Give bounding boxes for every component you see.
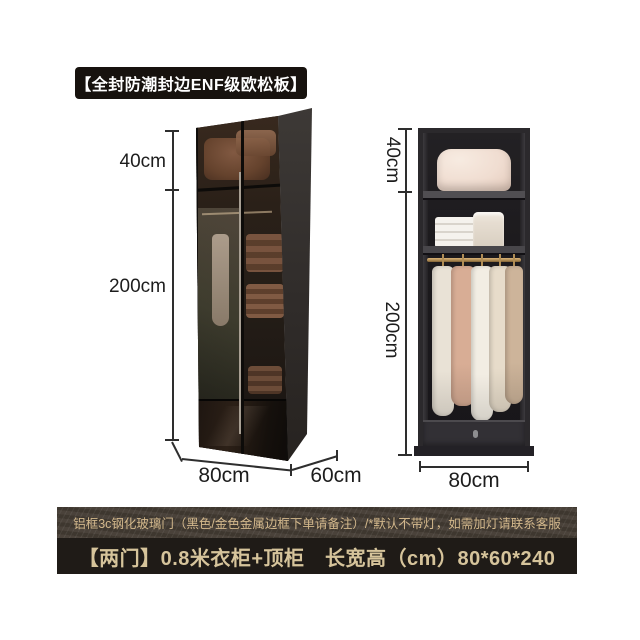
hanging-clothes (212, 234, 229, 326)
shelf (423, 191, 525, 200)
dim-line-width-right (419, 466, 529, 468)
dim-tick (165, 130, 179, 132)
hanger-hook (462, 254, 464, 266)
feature-badge: 【全封防潮封边ENF级欧松板】 (75, 67, 307, 99)
dim-tick (165, 189, 179, 191)
hanger-hook (481, 254, 483, 266)
wardrobe-open-view (418, 128, 530, 456)
folded-clothes-stack (246, 284, 284, 318)
dim-line-vertical-right (405, 128, 407, 456)
folded-blanket (437, 149, 511, 191)
dim-tick (527, 461, 529, 472)
dim-label-width-right: 80cm (446, 469, 502, 493)
drawer-front (423, 420, 525, 448)
dim-label-body-left: 200cm (88, 276, 166, 298)
dim-label-body-right: 200cm (382, 294, 402, 366)
door-seam (241, 116, 244, 461)
door-handle (239, 172, 241, 434)
dim-tick (336, 450, 338, 461)
hanger-hook (499, 254, 501, 266)
spec-note-banner: 铝框3c钢化玻璃门（黑色/金色金属边框下单请备注）/*默认不带灯，如需加灯请联系… (57, 507, 577, 538)
dim-label-top-cabinet-right: 40cm (383, 130, 403, 190)
interior-wall (423, 133, 428, 446)
product-title-banner: 【两门】0.8米衣柜+顶柜 长宽高（cm）80*60*240 (57, 538, 577, 574)
folded-clothes-stack (246, 234, 284, 272)
wardrobe-base (414, 446, 534, 456)
hanger-hook (513, 254, 515, 266)
dim-label-width-left: 80cm (196, 464, 252, 488)
dim-tick (398, 454, 412, 456)
spec-note-text: 铝框3c钢化玻璃门（黑色/金色金属边框下单请备注）/*默认不带灯，如需加灯请联系… (73, 513, 561, 532)
feature-badge-label: 【全封防潮封边ENF级欧松板】 (75, 71, 307, 95)
dim-tick (398, 191, 412, 193)
dim-tick (419, 461, 421, 472)
folded-clothes-stack (248, 366, 282, 394)
dim-line-vertical-left (172, 130, 174, 440)
dim-label-depth-left: 60cm (308, 464, 364, 488)
dim-label-top-cabinet-left: 40cm (100, 151, 166, 173)
storage-box (473, 212, 504, 248)
cabinet-edge (196, 126, 198, 450)
wardrobe-closed-view (196, 116, 288, 461)
hanger-hook (442, 254, 444, 266)
shelf (423, 246, 525, 255)
drawer-knob (473, 430, 478, 438)
hanging-garment (505, 266, 523, 404)
product-image: 【全封防潮封边ENF级欧松板】 40cm 200cm 80cm 60cm (0, 0, 640, 640)
product-title-text: 【两门】0.8米衣柜+顶柜 长宽高（cm）80*60*240 (79, 542, 556, 571)
